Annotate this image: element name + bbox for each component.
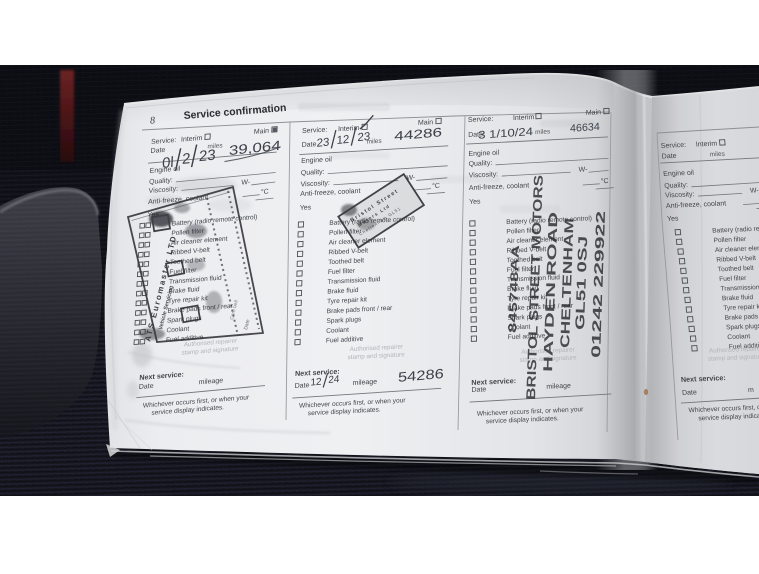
svg-text:Service:: Service: [661,142,687,150]
svg-text:mileage: mileage [546,383,571,391]
svg-text:Date: Date [302,141,317,149]
svg-text:8: 8 [150,115,156,126]
svg-text:23: 23 [316,137,329,150]
svg-text:Yes: Yes [300,204,312,212]
svg-text:Date: Date [682,389,697,397]
svg-text:Tyre repair kit: Tyre repair kit [723,303,759,312]
svg-text:mileage: mileage [352,379,377,387]
svg-text:W-: W- [241,179,251,187]
svg-text:2: 2 [182,150,191,168]
svg-text:Viscosity:: Viscosity: [665,191,695,199]
svg-text:Fuel filter: Fuel filter [719,275,748,283]
svg-text:Date: Date [150,147,165,155]
svg-text:miles: miles [709,151,725,159]
svg-text:W-: W- [750,187,759,194]
svg-text:Quality:: Quality: [469,160,493,168]
svg-text:Engine oil: Engine oil [468,150,499,158]
svg-text:miles: miles [535,128,551,136]
svg-text:Spark plugs: Spark plugs [726,323,759,332]
svg-text:Coolant: Coolant [326,327,349,335]
svg-text:Date: Date [295,382,310,390]
svg-text:Service:: Service: [302,127,328,135]
svg-text:Service:: Service: [468,116,493,124]
svg-text:12: 12 [310,377,322,389]
svg-text:Interim: Interim [338,125,360,133]
svg-text:Date: Date [661,153,676,161]
svg-text:23: 23 [357,131,370,144]
svg-text:Main: Main [586,109,601,117]
svg-text:Engine oil: Engine oil [663,170,695,178]
svg-text:Interim: Interim [513,114,535,122]
svg-text:m: m [748,387,755,394]
svg-text:Quality:: Quality: [301,169,325,177]
svg-text:Fuel filter: Fuel filter [328,268,356,276]
svg-text:12: 12 [336,134,349,147]
svg-text:Viscosity:: Viscosity: [469,171,499,179]
svg-text:Yes: Yes [469,198,481,206]
svg-text:0l: 0l [162,154,174,172]
svg-text:Date: Date [139,383,154,391]
svg-text:24: 24 [328,374,340,386]
svg-text:23: 23 [199,147,216,166]
svg-text:Brake fluid: Brake fluid [722,294,754,302]
svg-text:Pollen filter: Pollen filter [713,236,747,244]
svg-text:Date: Date [471,386,486,394]
svg-text:°C: °C [261,188,269,197]
svg-text:46634: 46634 [570,121,600,135]
svg-text:Coolant: Coolant [727,333,750,341]
svg-text:Yes: Yes [667,215,679,223]
svg-text:°C: °C [432,182,440,190]
svg-text:W-: W- [579,166,589,173]
svg-text:Interim: Interim [696,141,718,149]
svg-text:°C: °C [601,177,609,185]
svg-text:Main: Main [254,128,270,136]
svg-text:Quality:: Quality: [664,182,688,190]
